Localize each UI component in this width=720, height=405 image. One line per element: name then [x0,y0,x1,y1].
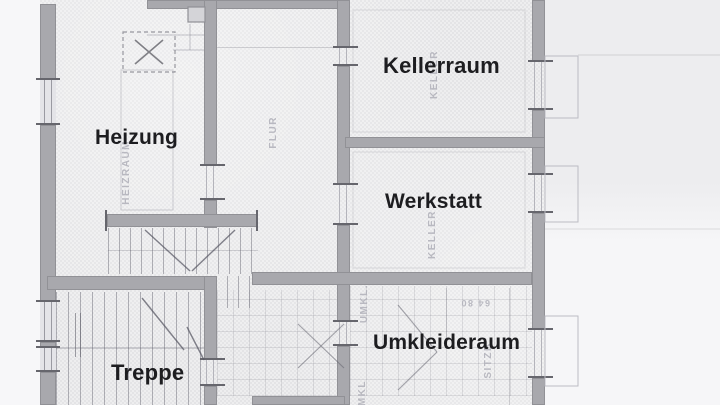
ghost-text-dimension: 64 80 [460,298,490,308]
wall-left-upper [40,4,56,80]
wall-right-c [532,213,545,330]
wall-umkleide-top [252,272,532,285]
ghost-text-umkl-clipped: UMKL [357,380,368,405]
tile-floor-landing [217,290,337,396]
wall-treppe-right-upper [204,276,217,360]
window-left-lower-b [40,348,56,372]
room-label-heizung: Heizung [95,126,178,150]
ghost-text-umkl: UMKL. [359,284,370,323]
room-label-werkstatt: Werkstatt [385,190,482,214]
right-area-background [545,0,720,405]
room-label-treppe: Treppe [111,360,184,386]
faint-line-corridor-top [216,47,337,48]
wall-right-a [532,0,545,62]
stair-handrail [75,313,81,357]
ghost-text-flur: FLUR [268,116,279,149]
wall-corridor-right-a [337,0,350,48]
wall-keller-werkstatt-divider [345,137,545,148]
stair-treads-upper-flight [108,228,258,274]
wall-treppe-right-lower [204,386,217,405]
outside-left-margin [0,0,40,405]
room-label-umkleideraum: Umkleideraum [373,331,520,355]
wall-above-upper-stairs [107,214,258,227]
vent-box [147,7,205,50]
wall-corridor-right-b [337,66,350,185]
wall-left-lower [40,372,56,405]
window-left-lower-a [40,302,56,342]
ghost-text-keller-lower: KELLER [427,210,438,259]
wall-top [147,0,349,9]
wall-heizung-right-upper [204,0,217,166]
faint-streak-right-top [578,54,720,56]
faint-streak-right-mid [545,228,720,230]
wall-right-d [532,378,545,405]
wall-above-treppe [47,276,215,290]
room-label-kellerraum: Kellerraum [383,53,500,79]
floor-plan: FLUR HEIZRAUM KELLER KELLER UMKL. UMKL S… [0,0,720,405]
wall-bottom-segment [252,396,345,405]
window-left-upper [40,80,56,125]
